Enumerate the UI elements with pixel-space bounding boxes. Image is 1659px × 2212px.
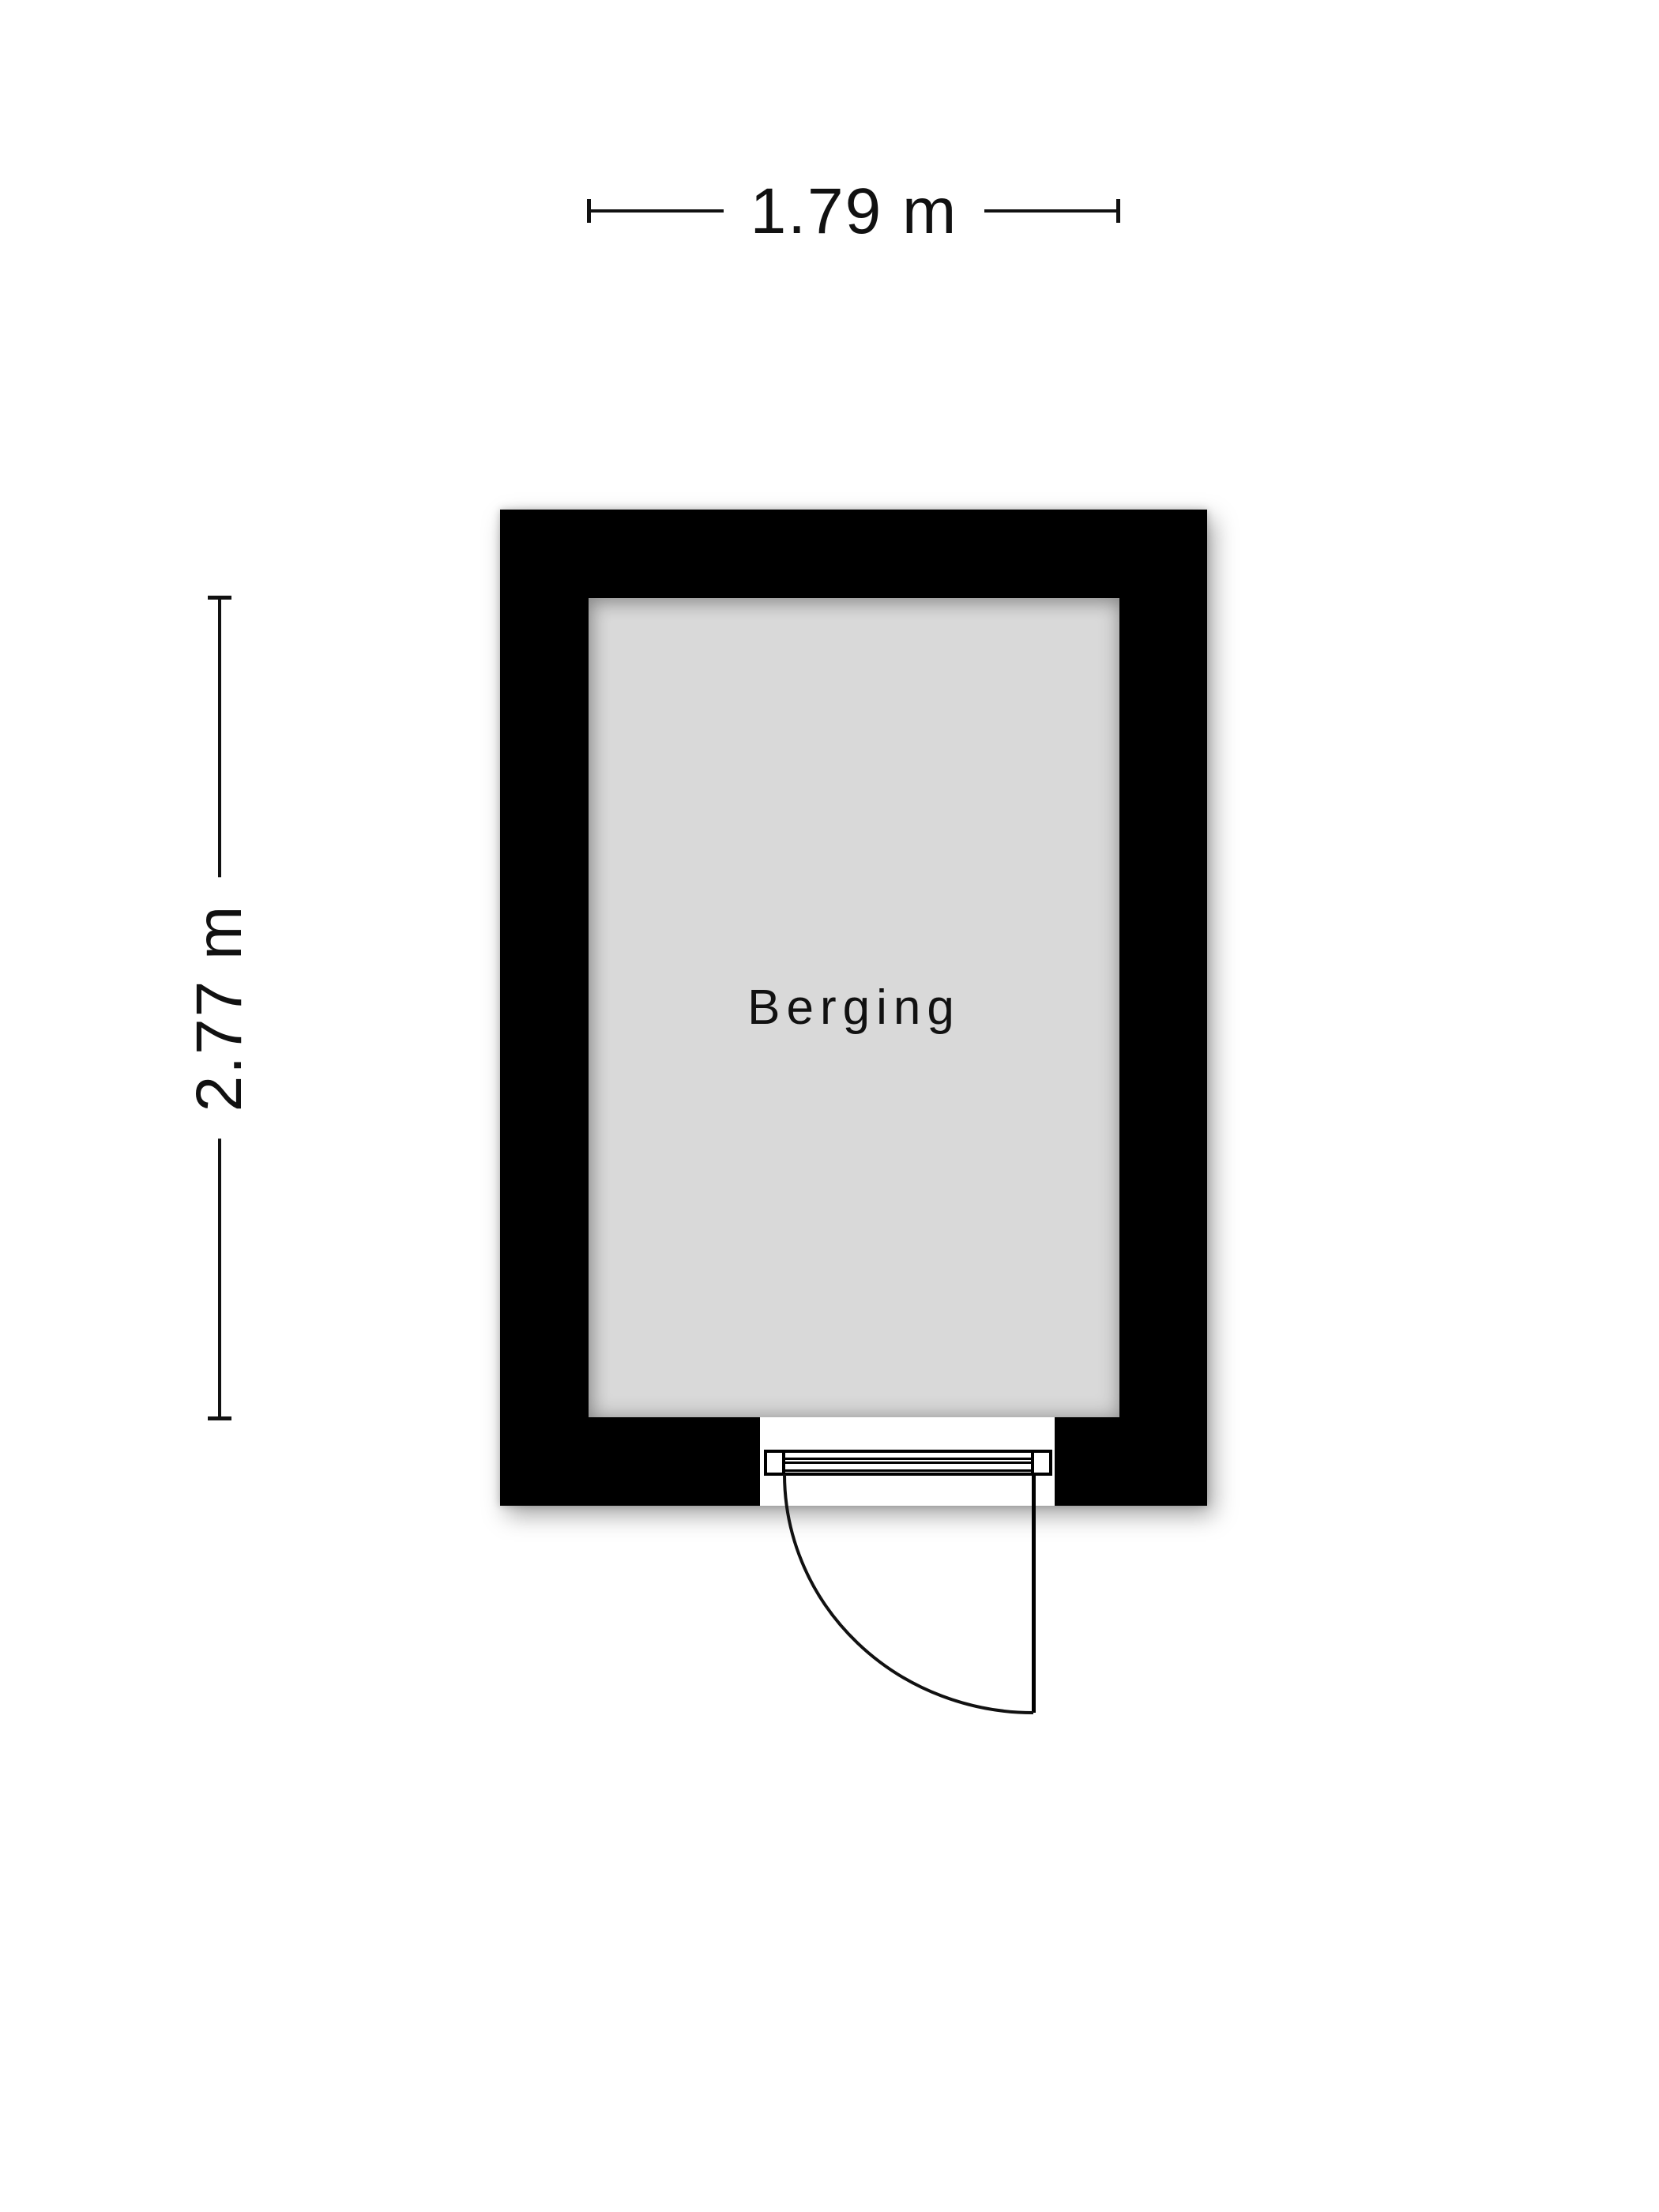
floorplan-canvas: 1.79 m 2.77 m Berging bbox=[0, 0, 1659, 2212]
door-threshold bbox=[785, 1450, 1031, 1476]
threshold-line bbox=[785, 1469, 1031, 1472]
door-jamb-left bbox=[764, 1450, 785, 1476]
dimension-tick-bottom bbox=[208, 1416, 231, 1420]
dimension-width-label-wrap: 1.79 m bbox=[589, 177, 1119, 246]
dimension-tick-top bbox=[208, 596, 231, 600]
threshold-line bbox=[785, 1461, 1031, 1464]
threshold-line bbox=[785, 1458, 1031, 1460]
room-berging: Berging bbox=[589, 598, 1119, 1417]
dimension-width-label: 1.79 m bbox=[724, 175, 985, 247]
door-jamb-right bbox=[1031, 1450, 1052, 1476]
door-leaf bbox=[1032, 1474, 1036, 1713]
room-label: Berging bbox=[747, 980, 961, 1036]
dimension-height-label: 2.77 m bbox=[185, 878, 254, 1139]
